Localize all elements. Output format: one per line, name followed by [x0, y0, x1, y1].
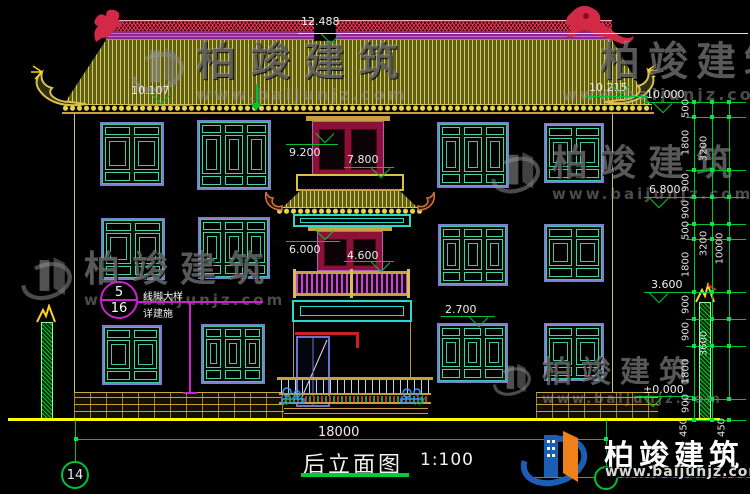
- window: [102, 325, 162, 385]
- level-center-2700: 2.700: [445, 303, 477, 316]
- roof-finial-right-icon: [562, 2, 636, 46]
- watermark-mid-right: 柏竣建筑 www.baijunjz.com: [490, 146, 750, 202]
- level-center-9200: 9.200: [289, 146, 321, 159]
- dim-inner-5: 1800: [681, 244, 692, 286]
- window: [437, 323, 508, 383]
- balcony-post-mid: [350, 269, 353, 298]
- tower-cyan-beam-lower: [292, 300, 412, 322]
- tower-wall-right: [410, 322, 411, 378]
- brand-logo-site: www.baijunjz.com: [605, 464, 750, 480]
- window: [437, 122, 509, 188]
- window: [544, 323, 604, 381]
- door-lintel-drop: [356, 332, 359, 348]
- tower-cyan-beam-upper: [293, 214, 411, 227]
- lamp-post-left: [41, 322, 53, 419]
- level-center-4600-marker: [370, 262, 390, 273]
- door-lintel: [295, 332, 359, 335]
- dim-mid-1: 3200: [699, 223, 710, 265]
- drawing-scale: 1:100: [420, 450, 474, 470]
- level-center-7800: 7.800: [347, 153, 379, 166]
- window: [198, 217, 270, 279]
- level-ridge-top: 12.488: [301, 15, 340, 28]
- level-center-9200-marker: [314, 133, 334, 144]
- dim-outer: 10000: [715, 228, 726, 270]
- level-right-10000: 10.000: [646, 88, 685, 101]
- level-right-3600-marker: [648, 293, 668, 304]
- wall-right-edge: [612, 114, 613, 394]
- window: [438, 224, 508, 286]
- watermark-logo-icon: [20, 252, 76, 306]
- callout-leader-v: [189, 301, 191, 394]
- miniroof-ridge: [300, 189, 400, 191]
- level-ridge-top-marker: [320, 34, 340, 45]
- window: [101, 218, 165, 280]
- roof-fascia: [62, 112, 654, 114]
- tower-wall-left: [293, 322, 294, 378]
- callout-leader-tick: [183, 392, 197, 394]
- callout-label-2: 详建施: [143, 305, 173, 320]
- miniroof-curl-right-icon: [416, 184, 442, 212]
- dim-inner-1: 1800: [681, 122, 692, 164]
- window: [201, 324, 265, 384]
- window: [544, 224, 604, 282]
- plinth-brick-left: [74, 392, 284, 419]
- eave-curl-left-icon: [26, 64, 88, 112]
- level-right-6800-marker: [648, 198, 668, 209]
- overall-width-dim: 18000: [318, 425, 359, 440]
- porch-ornament-left: [280, 385, 306, 406]
- window: [100, 122, 164, 186]
- level-left-eave-line: [128, 105, 190, 106]
- level-right-eave-marker: [610, 85, 630, 96]
- chain-line-mid: [712, 102, 713, 420]
- miniroof-surface: [282, 191, 418, 208]
- level-center-9200-line: [286, 144, 338, 145]
- chain-line-inner: [694, 102, 695, 420]
- level-right-6800: 6.800: [649, 183, 681, 196]
- detail-callout-number: 5: [115, 285, 123, 300]
- level-center-6000-line: [286, 241, 340, 242]
- roof-finial-left-icon: [90, 6, 128, 44]
- window: [544, 123, 604, 183]
- callout-leader-h: [138, 301, 263, 303]
- level-center-6000: 6.000: [289, 243, 321, 256]
- level-center-2700-marker: [468, 317, 488, 328]
- ground-line: [8, 418, 720, 421]
- level-right-eave-line: [586, 96, 648, 97]
- roof-ridge-hatch: [106, 20, 612, 31]
- level-right-3600: 3.600: [651, 278, 683, 291]
- detail-callout-divider: [102, 299, 136, 301]
- miniroof-curl-left-icon: [258, 184, 284, 212]
- brand-logo-icon: [518, 428, 600, 490]
- porch-ornament-right: [399, 385, 425, 406]
- miniroof-eave-tiles: [276, 207, 424, 214]
- detail-callout-sheet: 16: [111, 301, 128, 316]
- drawing-canvas: 12.488 10.107 10.215 10.000 6.800 3.600 …: [0, 0, 750, 494]
- window: [197, 120, 271, 190]
- level-left-eave-marker: [150, 94, 170, 105]
- grid-bubble-14-label: 14: [67, 468, 84, 483]
- balcony-post-right: [407, 269, 410, 298]
- wall-left-edge: [74, 114, 75, 394]
- dim-inner-7: 900: [681, 311, 692, 353]
- overall-dim-dot-left: [74, 437, 78, 441]
- eave-leader-arrow: [250, 103, 262, 111]
- level-right-10000-marker: [652, 103, 672, 114]
- chain-line-outer: [729, 102, 730, 399]
- level-center-7800-marker: [370, 168, 390, 179]
- grid-bubble-14: 14: [61, 461, 89, 489]
- drawing-title-underline: [301, 473, 409, 477]
- level-center-6000-marker: [314, 230, 334, 241]
- level-right-zero-marker: [642, 397, 662, 408]
- lamp-left-finial-icon: [34, 304, 58, 324]
- dim-mid-2: 3600: [699, 323, 710, 365]
- level-right-zero: ±0.000: [643, 383, 684, 396]
- level-ridge-top-line: [298, 33, 748, 34]
- dim-mid-0: 3200: [699, 128, 710, 170]
- balcony-post-left: [293, 269, 296, 298]
